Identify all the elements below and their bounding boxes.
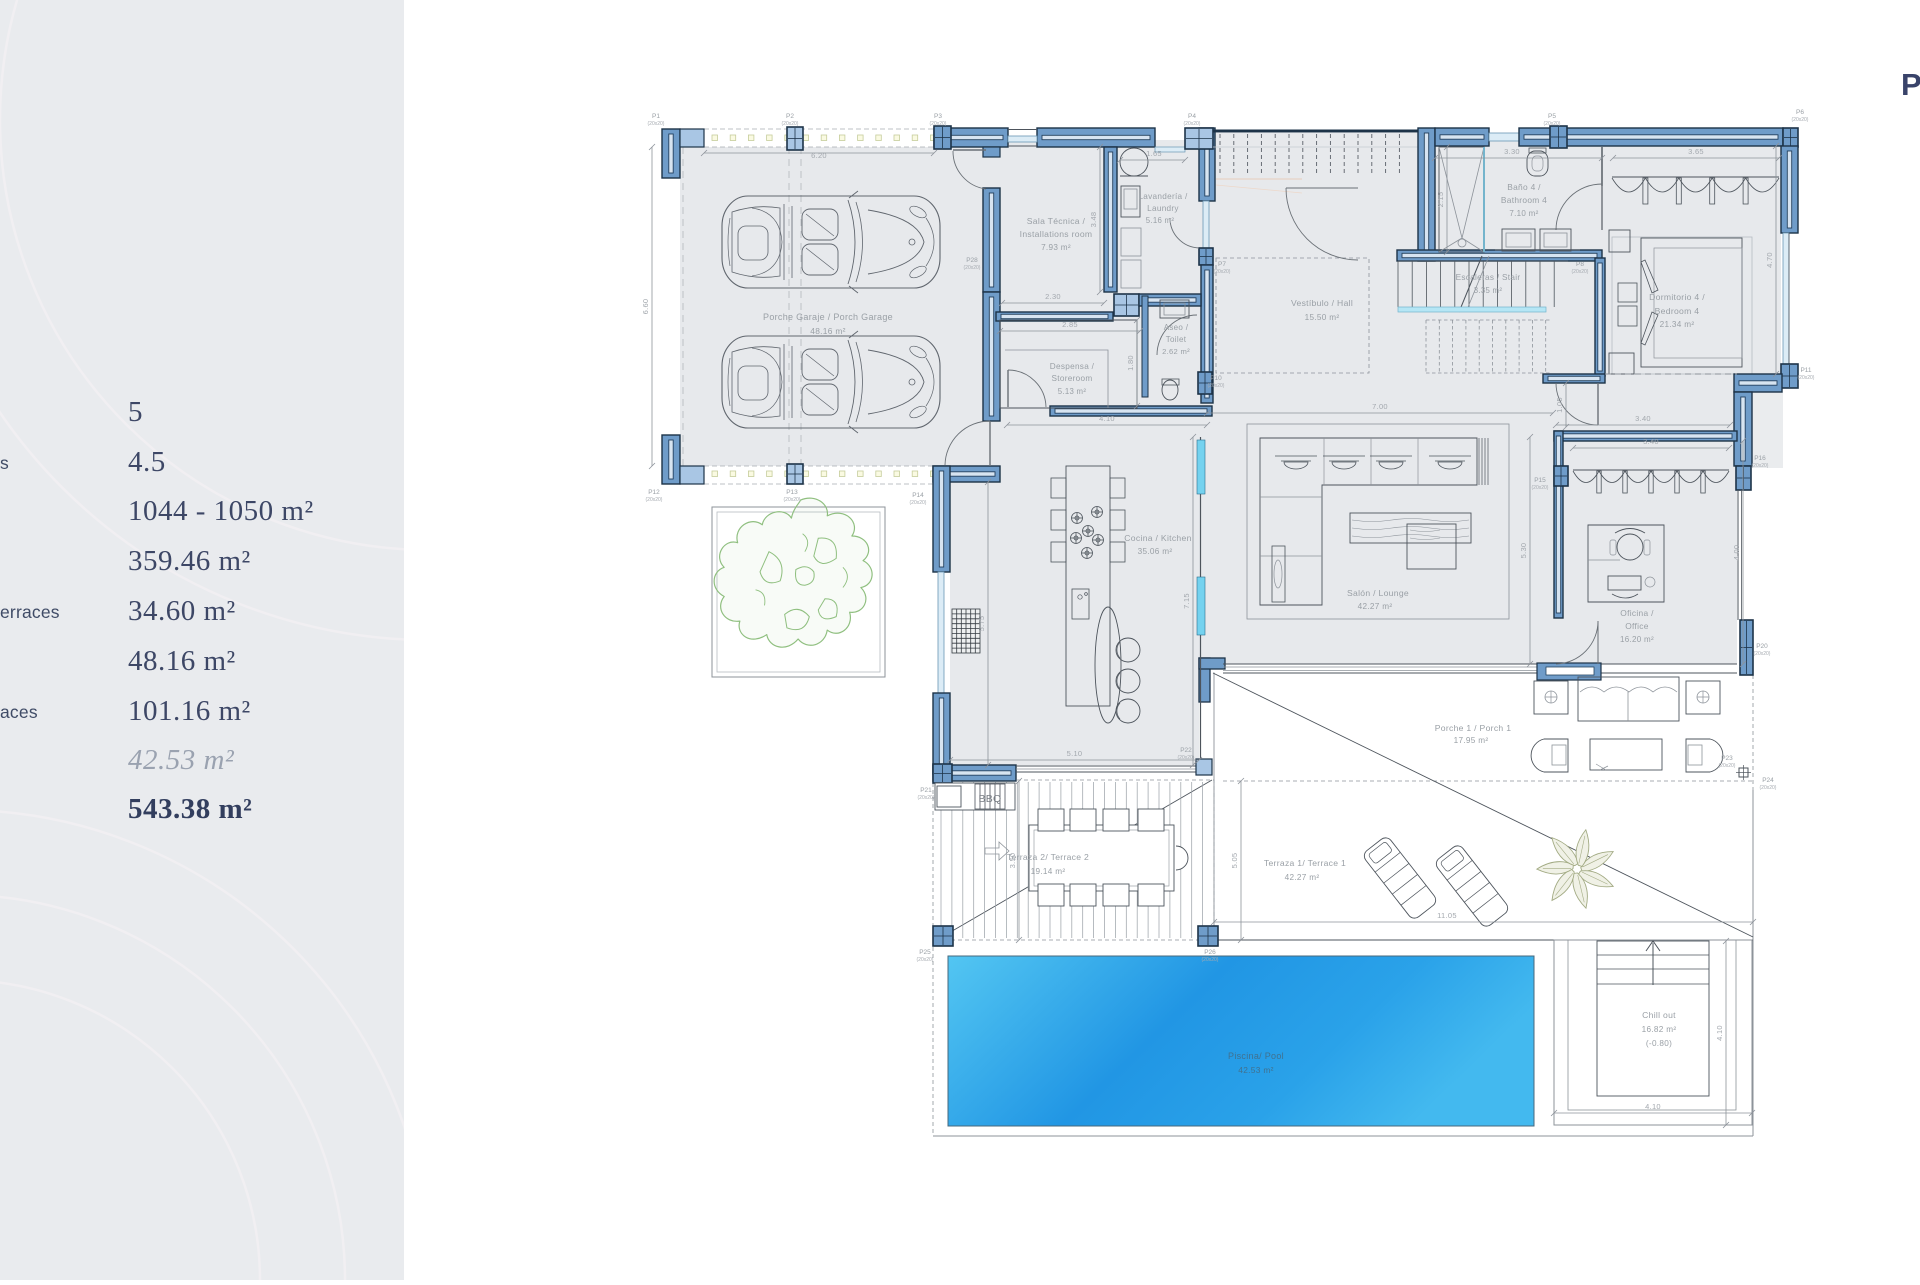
svg-text:4.10: 4.10 — [1715, 1025, 1724, 1041]
svg-text:(20x20): (20x20) — [646, 497, 663, 503]
svg-text:4.70: 4.70 — [1765, 252, 1774, 268]
svg-text:6.20: 6.20 — [811, 151, 827, 160]
svg-text:erraces: erraces — [0, 602, 60, 622]
svg-text:Baño 4 /: Baño 4 / — [1507, 182, 1541, 192]
svg-text:3.35 m²: 3.35 m² — [1474, 286, 1503, 295]
svg-text:34.60 m²: 34.60 m² — [128, 595, 236, 627]
svg-text:4.10: 4.10 — [1645, 1102, 1661, 1111]
svg-text:(20x20): (20x20) — [1178, 755, 1195, 761]
svg-text:Cocina / Kitchen: Cocina / Kitchen — [1124, 533, 1191, 543]
svg-text:Chill out: Chill out — [1642, 1010, 1676, 1020]
svg-text:1.80: 1.80 — [1126, 355, 1135, 371]
svg-text:(20x20): (20x20) — [1544, 121, 1561, 127]
svg-text:s: s — [0, 453, 9, 473]
svg-text:P7: P7 — [1218, 261, 1226, 268]
svg-text:(20x20): (20x20) — [1760, 785, 1777, 791]
svg-text:P21: P21 — [920, 787, 932, 794]
svg-text:101.16 m²: 101.16 m² — [128, 695, 251, 727]
svg-text:42.53 m²: 42.53 m² — [1238, 1065, 1273, 1075]
svg-text:16.82 m²: 16.82 m² — [1642, 1025, 1677, 1034]
svg-text:3.30: 3.30 — [1504, 147, 1520, 156]
svg-text:7.93 m²: 7.93 m² — [1041, 243, 1071, 252]
svg-text:48.16 m²: 48.16 m² — [810, 326, 845, 336]
svg-text:P6: P6 — [1796, 109, 1804, 116]
svg-text:Porche 1 / Porch 1: Porche 1 / Porch 1 — [1435, 723, 1512, 733]
svg-text:48.16 m²: 48.16 m² — [128, 645, 236, 677]
svg-text:P12: P12 — [648, 489, 660, 496]
svg-text:P1: P1 — [652, 113, 660, 120]
svg-text:Installations room: Installations room — [1020, 229, 1093, 239]
svg-text:P10: P10 — [1210, 375, 1222, 382]
svg-text:P25: P25 — [919, 949, 931, 956]
svg-text:3.48: 3.48 — [1089, 212, 1098, 228]
svg-text:4.00: 4.00 — [1732, 545, 1741, 561]
svg-text:P28: P28 — [966, 257, 978, 264]
svg-text:Sala Técnica /: Sala Técnica / — [1027, 216, 1086, 226]
svg-text:P22: P22 — [1180, 747, 1192, 754]
svg-text:2.62 m²: 2.62 m² — [1162, 347, 1190, 356]
svg-text:Terraza 1/ Terrace 1: Terraza 1/ Terrace 1 — [1264, 858, 1346, 868]
svg-text:Vestíbulo / Hall: Vestíbulo / Hall — [1291, 298, 1353, 308]
svg-text:Salón / Lounge: Salón / Lounge — [1347, 588, 1409, 598]
svg-text:35.06 m²: 35.06 m² — [1138, 547, 1173, 556]
svg-text:3.40: 3.40 — [1643, 437, 1659, 446]
svg-text:(20x20): (20x20) — [784, 497, 801, 503]
svg-text:(20x20): (20x20) — [1752, 463, 1769, 469]
svg-text:6.60: 6.60 — [641, 299, 650, 315]
svg-text:5.13 m²: 5.13 m² — [1058, 387, 1087, 396]
svg-text:(20x20): (20x20) — [964, 265, 981, 271]
svg-text:(20x20): (20x20) — [1202, 957, 1219, 963]
svg-text:19.14 m²: 19.14 m² — [1031, 867, 1066, 876]
svg-text:42.53 m²: 42.53 m² — [128, 744, 235, 776]
svg-text:3.40: 3.40 — [1635, 414, 1651, 423]
svg-text:P23: P23 — [1721, 755, 1733, 762]
svg-text:4.10: 4.10 — [1099, 414, 1115, 423]
svg-text:P5: P5 — [1548, 113, 1556, 120]
svg-text:(20x20): (20x20) — [1532, 485, 1549, 491]
svg-text:5: 5 — [128, 396, 143, 428]
svg-text:2.85: 2.85 — [1062, 320, 1078, 329]
svg-text:P13: P13 — [786, 489, 798, 496]
svg-text:Laundry: Laundry — [1147, 204, 1179, 213]
svg-text:543.38 m²: 543.38 m² — [128, 793, 252, 825]
svg-text:P: P — [1901, 67, 1920, 102]
svg-text:2.30: 2.30 — [1045, 292, 1061, 301]
svg-text:P2: P2 — [786, 113, 794, 120]
svg-text:17.95 m²: 17.95 m² — [1454, 736, 1489, 745]
svg-text:21.34 m²: 21.34 m² — [1660, 320, 1695, 329]
svg-text:1044 - 1050 m²: 1044 - 1050 m² — [128, 495, 314, 527]
svg-text:(20x20): (20x20) — [1792, 117, 1809, 123]
svg-text:(20x20): (20x20) — [930, 121, 947, 127]
svg-text:Storeroom: Storeroom — [1052, 374, 1093, 383]
svg-text:(20x20): (20x20) — [782, 121, 799, 127]
svg-text:Bathroom 4: Bathroom 4 — [1501, 195, 1547, 205]
svg-text:(20x20): (20x20) — [1208, 383, 1225, 389]
svg-text:P4: P4 — [1188, 113, 1196, 120]
svg-text:(20x20): (20x20) — [910, 500, 927, 506]
svg-text:Bedroom 4: Bedroom 4 — [1655, 306, 1700, 316]
svg-text:P26: P26 — [1204, 949, 1216, 956]
svg-text:3.50: 3.50 — [1008, 853, 1017, 869]
svg-text:P20: P20 — [1756, 643, 1768, 650]
svg-text:aces: aces — [0, 702, 38, 722]
svg-text:(20x20): (20x20) — [648, 121, 665, 127]
svg-text:P24: P24 — [1762, 777, 1774, 784]
svg-text:Porche Garaje / Porch Garage: Porche Garaje / Porch Garage — [763, 312, 893, 322]
svg-text:359.46 m²: 359.46 m² — [128, 545, 251, 577]
svg-text:Escaleras / Stair: Escaleras / Stair — [1456, 273, 1521, 282]
svg-text:(20x20): (20x20) — [1754, 651, 1771, 657]
svg-text:5.30: 5.30 — [1519, 543, 1528, 559]
svg-text:1.05: 1.05 — [1555, 397, 1564, 413]
svg-text:16.20 m²: 16.20 m² — [1620, 635, 1654, 644]
svg-text:(20x20): (20x20) — [1214, 269, 1231, 275]
svg-text:42.27 m²: 42.27 m² — [1358, 602, 1393, 611]
svg-text:P11: P11 — [1800, 367, 1811, 374]
svg-text:P3: P3 — [934, 113, 942, 120]
svg-text:(20x20): (20x20) — [1719, 763, 1736, 769]
svg-text:11.05: 11.05 — [1437, 911, 1457, 920]
svg-text:5.05: 5.05 — [1230, 853, 1239, 869]
svg-text:P16: P16 — [1754, 455, 1766, 462]
svg-text:42.27 m²: 42.27 m² — [1285, 873, 1320, 882]
svg-text:(20x20): (20x20) — [1184, 121, 1201, 127]
svg-text:Toilet: Toilet — [1166, 335, 1187, 344]
svg-text:Office: Office — [1625, 621, 1649, 631]
svg-text:Aseo /: Aseo / — [1164, 323, 1189, 332]
svg-text:2.15: 2.15 — [1436, 192, 1445, 208]
svg-text:7.00: 7.00 — [1372, 402, 1388, 411]
svg-text:4.5: 4.5 — [128, 446, 166, 478]
svg-text:P8: P8 — [1576, 261, 1584, 268]
svg-text:Oficina /: Oficina / — [1620, 608, 1654, 618]
svg-text:(20x20): (20x20) — [917, 957, 934, 963]
svg-text:Dormitorio 4 /: Dormitorio 4 / — [1649, 292, 1705, 302]
svg-text:(-0.80): (-0.80) — [1646, 1039, 1672, 1048]
svg-text:3.65: 3.65 — [1688, 147, 1704, 156]
svg-text:(20x20): (20x20) — [1798, 375, 1815, 381]
svg-text:P15: P15 — [1534, 477, 1546, 484]
svg-text:(20x20): (20x20) — [918, 795, 935, 801]
svg-text:Despensa /: Despensa / — [1050, 362, 1095, 371]
svg-text:(20x20): (20x20) — [1572, 269, 1589, 275]
svg-text:1.65: 1.65 — [1146, 149, 1162, 158]
svg-text:5.10: 5.10 — [1067, 749, 1083, 758]
svg-text:7.15: 7.15 — [1182, 593, 1191, 609]
svg-text:Lavandería /: Lavandería / — [1138, 192, 1188, 201]
svg-text:15.50 m²: 15.50 m² — [1305, 313, 1340, 322]
svg-text:P14: P14 — [912, 492, 924, 499]
svg-text:BBQ: BBQ — [978, 793, 1001, 805]
svg-text:7.10 m²: 7.10 m² — [1509, 209, 1538, 218]
svg-text:5.16 m²: 5.16 m² — [1146, 216, 1175, 225]
svg-text:Piscina/ Pool: Piscina/ Pool — [1228, 1051, 1284, 1061]
svg-text:5.75: 5.75 — [977, 616, 986, 632]
